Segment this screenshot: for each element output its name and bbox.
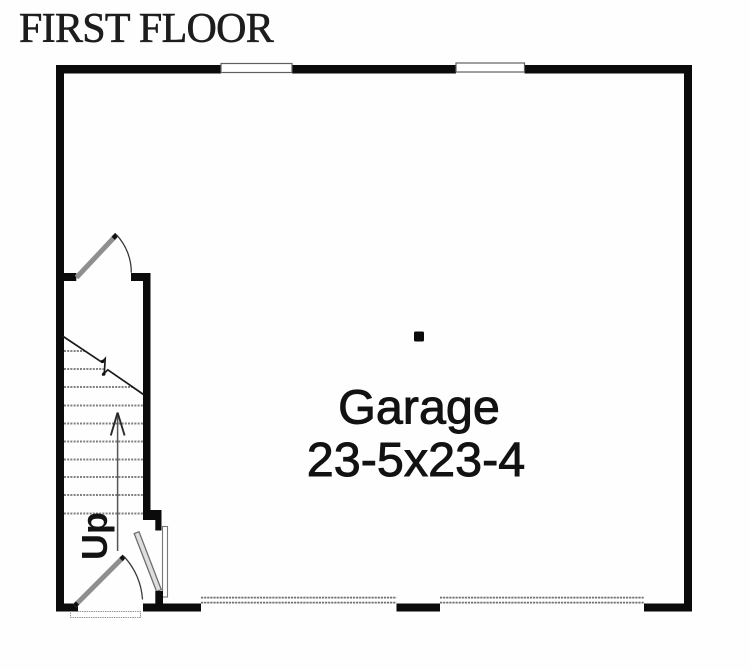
svg-text:Garage: Garage: [338, 381, 500, 435]
svg-text:23-5x23-4: 23-5x23-4: [307, 433, 525, 487]
svg-text:FIRST FLOOR: FIRST FLOOR: [19, 6, 274, 52]
svg-text:Up: Up: [74, 512, 115, 560]
